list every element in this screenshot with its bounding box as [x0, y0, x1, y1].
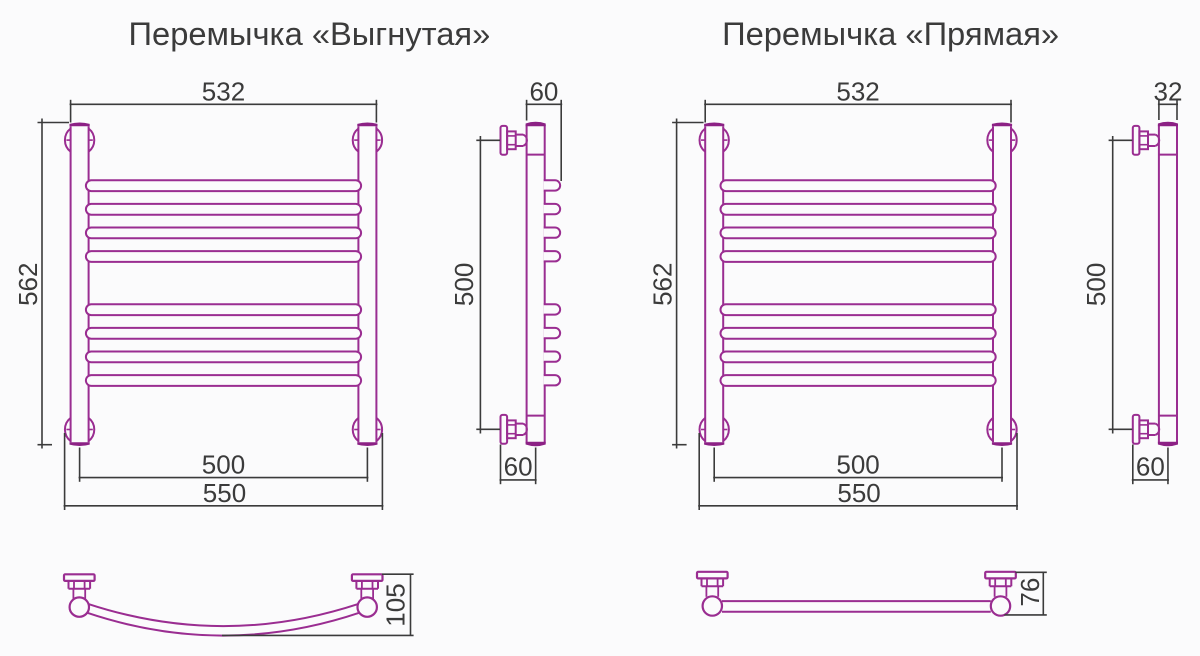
- svg-text:60: 60: [504, 452, 533, 482]
- svg-text:562: 562: [648, 263, 678, 306]
- svg-text:550: 550: [837, 478, 880, 508]
- svg-text:550: 550: [203, 478, 246, 508]
- svg-text:500: 500: [202, 449, 245, 479]
- svg-text:500: 500: [1081, 263, 1111, 306]
- svg-text:532: 532: [202, 76, 245, 106]
- svg-text:32: 32: [1153, 76, 1182, 106]
- svg-text:Перемычка «Выгнутая»: Перемычка «Выгнутая»: [129, 15, 491, 52]
- svg-text:105: 105: [380, 583, 410, 626]
- svg-text:60: 60: [529, 76, 558, 106]
- svg-text:500: 500: [836, 449, 879, 479]
- svg-text:500: 500: [449, 263, 479, 306]
- svg-text:76: 76: [1015, 578, 1045, 607]
- svg-text:Перемычка «Прямая»: Перемычка «Прямая»: [722, 15, 1059, 52]
- svg-text:562: 562: [13, 263, 43, 306]
- svg-text:532: 532: [836, 76, 879, 106]
- svg-text:60: 60: [1136, 452, 1165, 482]
